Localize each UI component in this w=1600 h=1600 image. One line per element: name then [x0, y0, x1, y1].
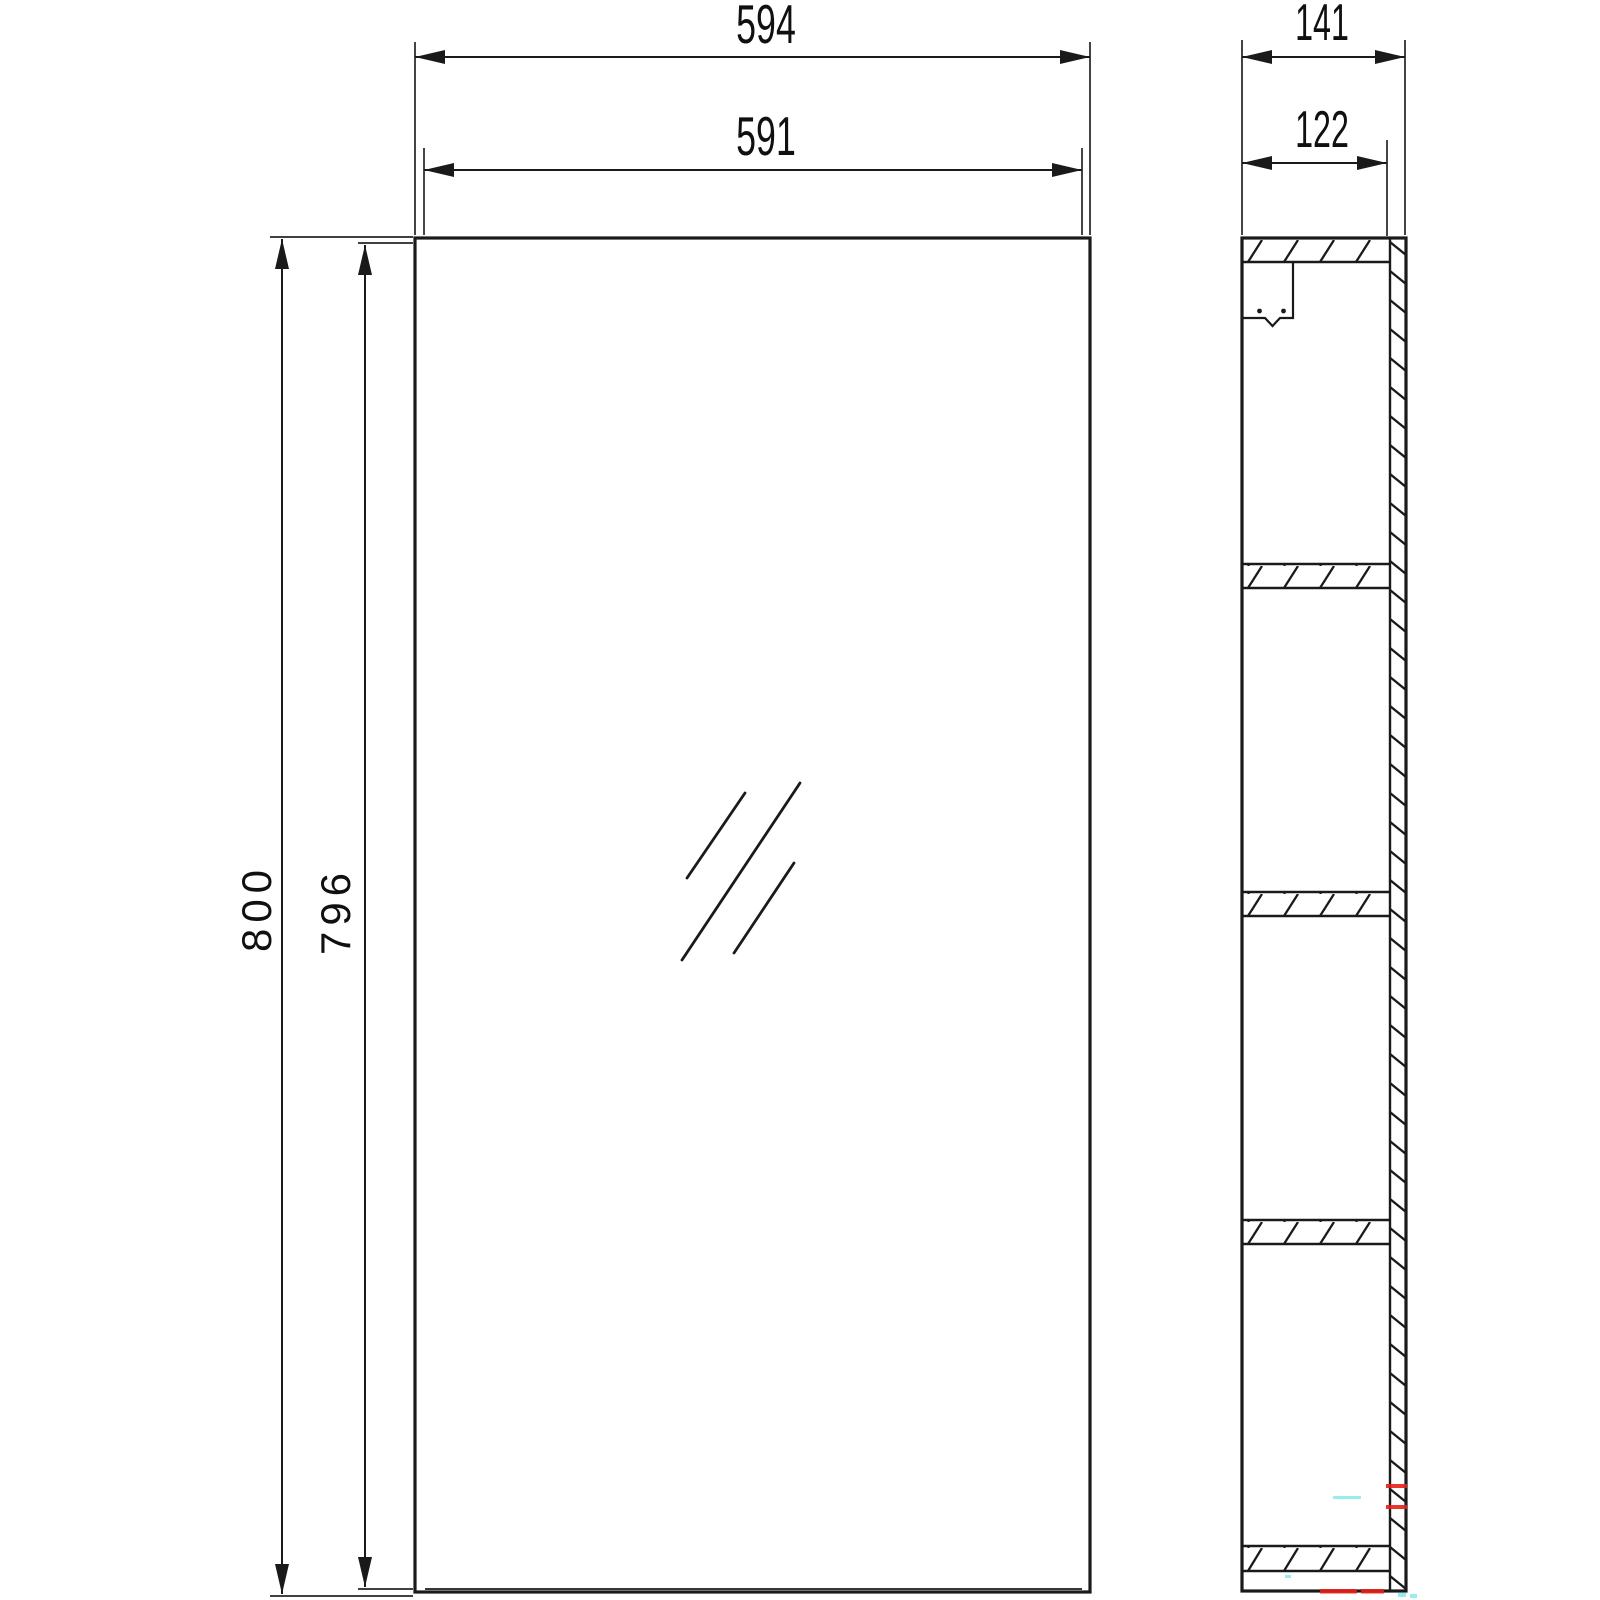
artifact-cyan: [1285, 1575, 1291, 1578]
shelf-band: [1242, 1546, 1390, 1571]
artifact-red: [1386, 1484, 1407, 1488]
artifact-red: [1320, 1589, 1357, 1594]
dimension-label: 800: [233, 864, 280, 952]
bracket-screw-dot: [1281, 309, 1286, 314]
side-panel-hatch: [1390, 239, 1406, 1590]
cabinet-front-outline: [415, 238, 1090, 1592]
drawing-canvas: 594 591 800 796: [0, 0, 1600, 1600]
side-view: [1242, 238, 1406, 1591]
shelf-hatch: [1244, 893, 1389, 915]
dimension-label: 594: [736, 0, 796, 55]
shelf-band: [1242, 564, 1390, 588]
front-view: [415, 238, 1090, 1592]
dimension-label: 141: [1295, 0, 1349, 52]
technical-drawing-page: 594 591 800 796: [0, 0, 1600, 1600]
dimension-label: 591: [736, 105, 796, 167]
shelf-hatch: [1244, 240, 1389, 261]
shelf-hatch: [1244, 565, 1389, 587]
shelf-band: [1242, 240, 1390, 262]
artifact-red: [1361, 1589, 1384, 1594]
shelf-hatch: [1244, 1547, 1389, 1570]
bracket-screw-dot: [1257, 309, 1262, 314]
shelf-hatch: [1244, 1221, 1389, 1243]
dimension-label: 796: [312, 867, 359, 955]
dimension-label: 122: [1295, 101, 1349, 159]
artifact-cyan: [1410, 1594, 1417, 1598]
artifact-cyan: [1333, 1496, 1361, 1499]
artifact-cyan: [1398, 1593, 1406, 1597]
shelf-band: [1242, 1220, 1390, 1244]
artifact-red: [1386, 1505, 1407, 1509]
shelf-band: [1242, 892, 1390, 916]
